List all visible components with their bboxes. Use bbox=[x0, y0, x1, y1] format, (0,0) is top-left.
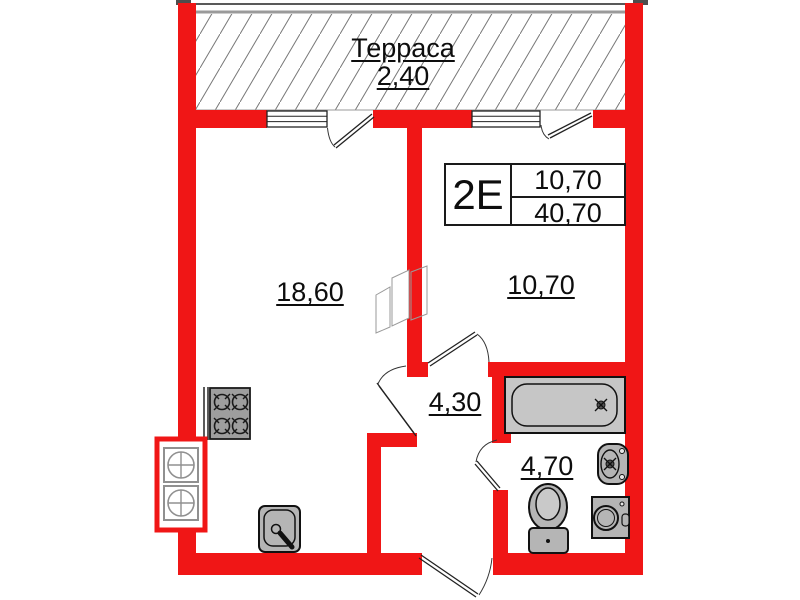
wall-bedroom-door-jamb bbox=[407, 362, 428, 377]
wall-interior-vertical bbox=[407, 128, 422, 362]
floor-plan: Терраса 2,40 18,60 10,70 4,30 4,70 2E 10… bbox=[0, 0, 800, 600]
unit-info-card: 2E 10,70 40,70 bbox=[444, 163, 626, 226]
wall-terrace-segment-c bbox=[593, 110, 625, 128]
bedroom-area-label: 10,70 bbox=[456, 270, 626, 301]
wall-bathroom-left-lower bbox=[493, 490, 508, 553]
hall-area-label: 4,30 bbox=[370, 387, 540, 418]
living-room-area-label: 18,60 bbox=[225, 277, 395, 308]
wall-bottom-right bbox=[493, 553, 643, 575]
door-bedroom-terrace bbox=[541, 113, 592, 139]
unit-upper-area-value: 10,70 bbox=[512, 165, 624, 198]
window-bedroom-terrace bbox=[472, 111, 540, 127]
unit-type-label: 2E bbox=[446, 165, 512, 224]
wall-right-exterior bbox=[625, 3, 643, 575]
unit-total-area-value: 40,70 bbox=[512, 198, 624, 229]
wall-kitchen-vertical bbox=[367, 447, 381, 553]
terrace-name-label: Терраса bbox=[318, 33, 488, 64]
window-living-terrace bbox=[267, 111, 327, 127]
unit-areas: 10,70 40,70 bbox=[512, 165, 624, 224]
kitchen-sink-icon bbox=[259, 506, 300, 552]
wall-bathroom-door-jamb bbox=[492, 433, 511, 443]
door-entrance bbox=[419, 555, 492, 597]
stove-icon bbox=[204, 387, 250, 440]
door-living-terrace bbox=[328, 114, 375, 148]
wall-terrace-segment-b bbox=[373, 110, 472, 128]
washing-machine-icon bbox=[592, 497, 629, 538]
wall-bottom-left bbox=[178, 553, 422, 575]
vent-shafts-icon bbox=[157, 439, 205, 530]
wall-kitchen-stub bbox=[367, 433, 417, 447]
door-bedroom-hall bbox=[428, 332, 489, 366]
bathroom-area-label: 4,70 bbox=[462, 451, 632, 482]
toilet-icon bbox=[529, 484, 568, 553]
wall-bathroom-top bbox=[488, 362, 625, 377]
wall-terrace-segment-a bbox=[196, 110, 267, 128]
terrace-area-label: 2,40 bbox=[318, 61, 488, 92]
